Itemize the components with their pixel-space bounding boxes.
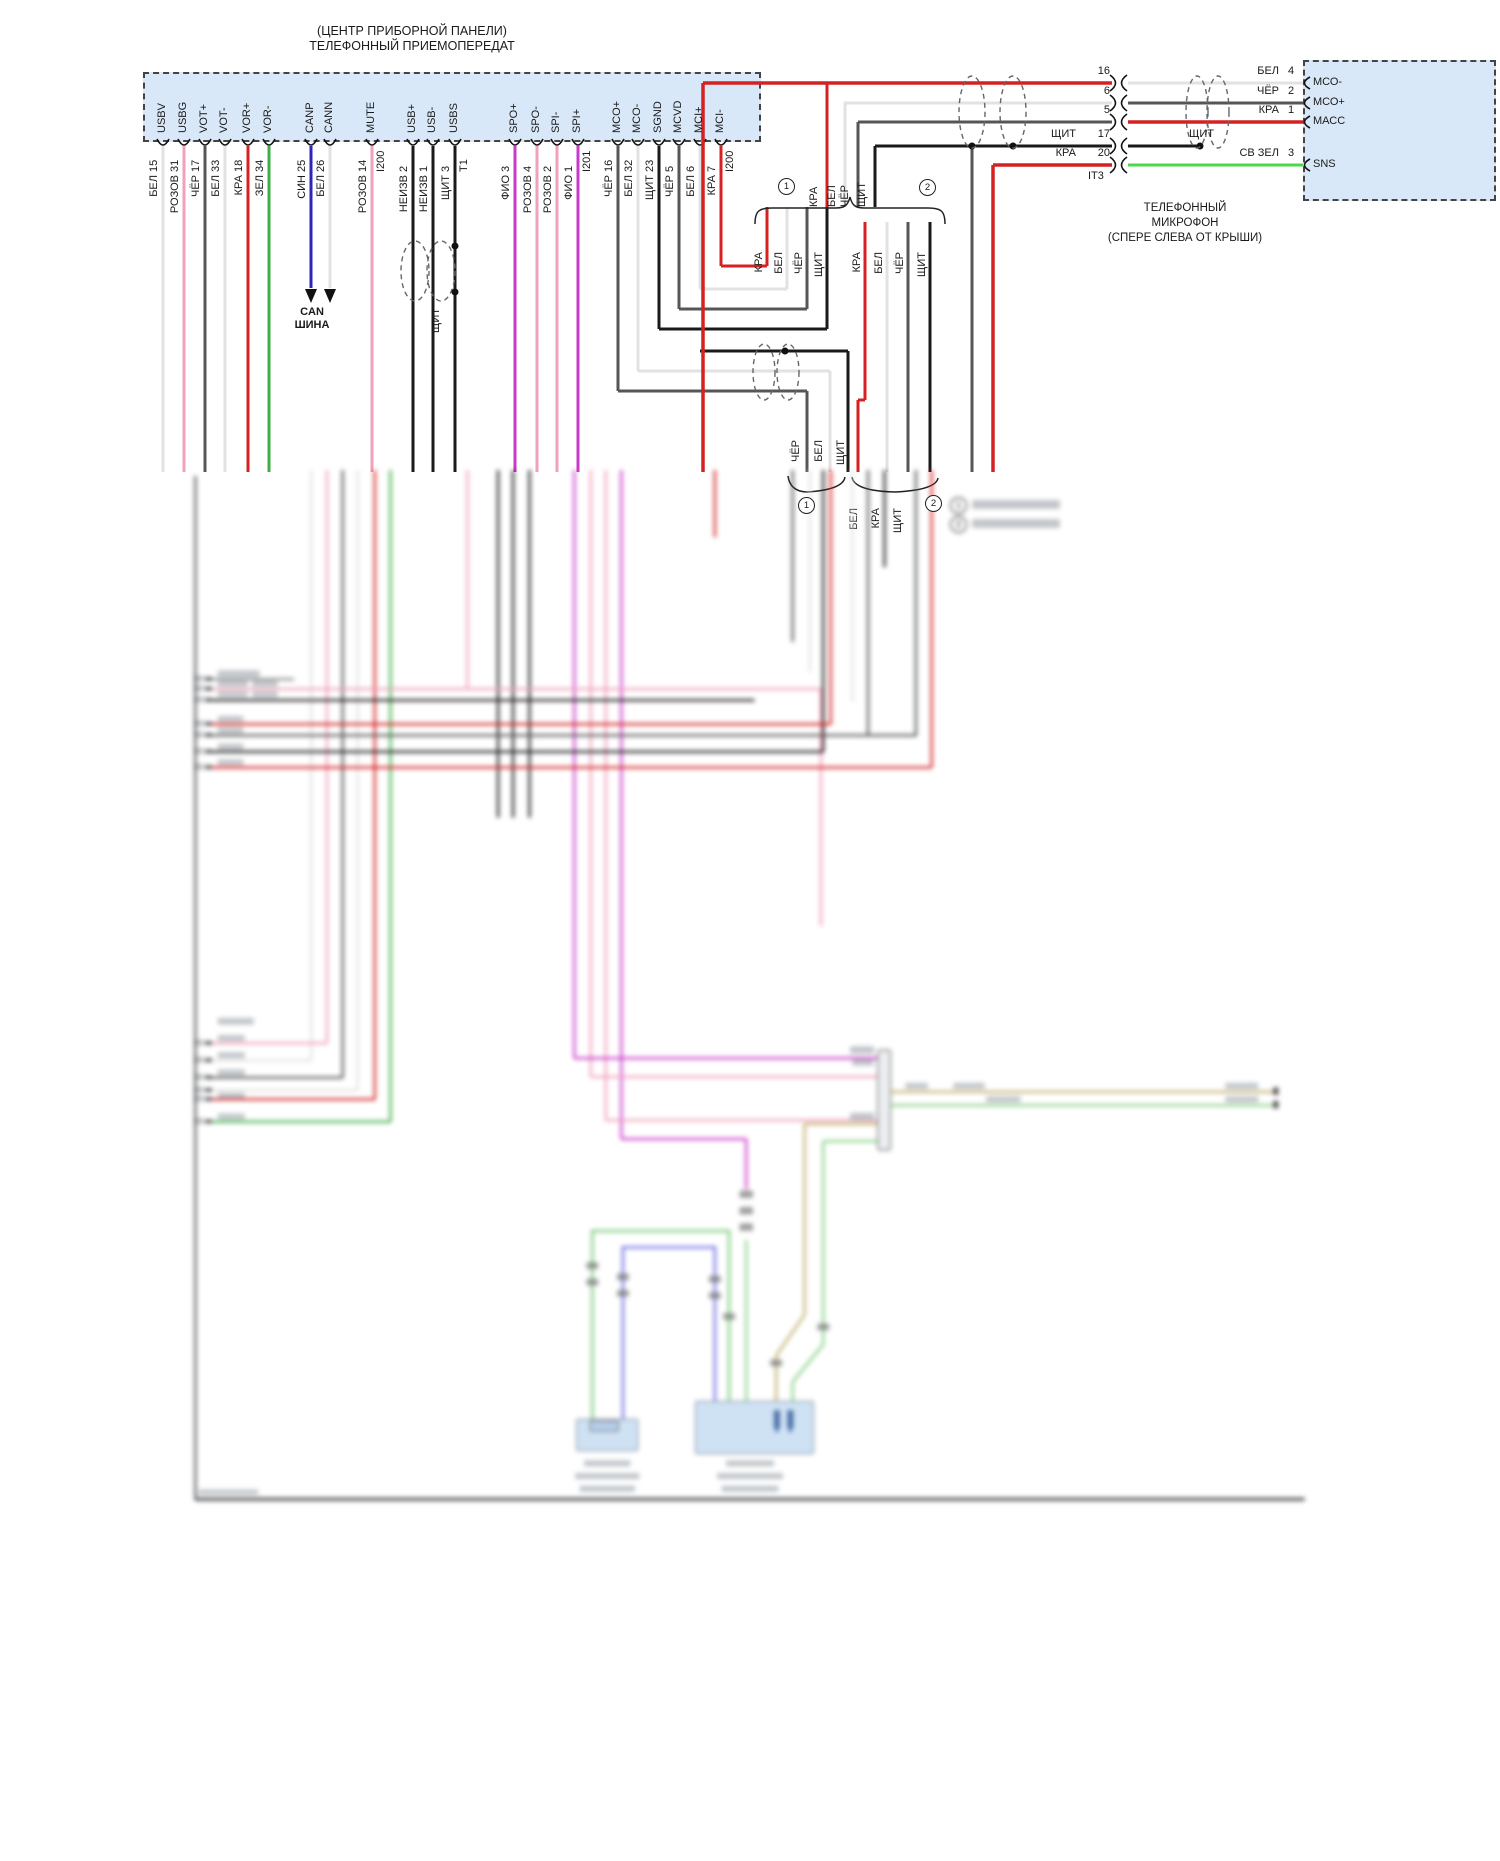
wire-color-label: ЧЁР — [190, 175, 203, 197]
shape — [1305, 97, 1311, 109]
connector-id: I200 — [724, 151, 737, 172]
wire-color-label: РОЗОВ — [357, 175, 370, 213]
pin-number: 2 — [542, 166, 555, 172]
bundle-marker-2: 2 — [919, 179, 936, 196]
pin-number: 25 — [296, 160, 309, 172]
shape — [263, 139, 275, 145]
pin-number: 3 — [500, 166, 513, 172]
shape — [612, 139, 624, 145]
group2-label: ЧЁР — [894, 252, 907, 274]
shape — [1122, 157, 1128, 173]
shape — [219, 139, 231, 145]
trio1-label: БЕЛ — [813, 440, 826, 462]
shape — [715, 139, 727, 145]
mic-wire-label-right: БЕЛ — [1215, 65, 1279, 78]
pin-label-mco-: MCO- — [631, 104, 644, 133]
wire-color-label: НЕИЗВ — [398, 175, 411, 212]
pin-number: 1 — [418, 166, 431, 172]
shield-symbol — [401, 241, 429, 301]
pin-label-mco+: MCO+ — [611, 101, 624, 133]
legend-item-1: 1 — [950, 497, 1100, 513]
pin-label-usbg: USBG — [177, 102, 190, 133]
pin-label-spi+: SPI+ — [571, 109, 584, 133]
pin-label-spo+: SPO+ — [508, 103, 521, 133]
pin-label-spi-: SPI- — [550, 112, 563, 133]
pin-label-mci-: MCI- — [714, 109, 727, 133]
pin-number: 18 — [233, 160, 246, 172]
pin-number: 14 — [357, 160, 370, 172]
shape — [1305, 116, 1311, 128]
pin-number: 7 — [706, 166, 719, 172]
shape — [427, 139, 439, 145]
legend-text-1 — [972, 500, 1060, 509]
pin-label-vor+: VOR+ — [241, 103, 254, 133]
legend-marker-1: 1 — [950, 497, 967, 514]
mic-num-right: 4 — [1288, 65, 1302, 78]
shield-symbol — [959, 76, 985, 148]
wire-color-label: БЕЛ — [148, 175, 161, 197]
bundle-top-label: КРА — [808, 187, 821, 207]
wiring-diagram-page: (ЦЕНТР ПРИБОРНОЙ ПАНЕЛИ) ТЕЛЕФОННЫЙ ПРИЕ… — [0, 0, 1500, 1861]
mic-num-right: 3 — [1288, 147, 1302, 160]
pin-label-vot+: VOT+ — [198, 104, 211, 133]
pin-number: 32 — [623, 160, 636, 172]
group1-label: ЧЁР — [793, 252, 806, 274]
shape — [324, 139, 336, 145]
schematic-blur-layer — [0, 470, 1500, 1861]
mic-wire-label-right: КРА — [1215, 104, 1279, 117]
wire-color-label: НЕИЗВ — [418, 175, 431, 212]
legend-marker-2: 2 — [950, 516, 967, 533]
wire-color-label: РОЗОВ — [542, 175, 555, 213]
group2-label: ЩИТ — [916, 252, 929, 277]
pin-number: 23 — [644, 160, 657, 172]
wire-color-label: РОЗОВ — [169, 175, 182, 213]
shape — [632, 139, 644, 145]
wire-color-label: ФИО — [500, 175, 513, 200]
pin-label-vor-: VOR- — [262, 106, 275, 134]
shield-symbol — [1000, 76, 1026, 148]
pin-number: 31 — [169, 160, 182, 172]
shape — [531, 139, 543, 145]
pin-number: 2 — [398, 166, 411, 172]
shield-symbol — [427, 241, 455, 301]
pin-number: 34 — [254, 160, 267, 172]
bundle-top-label: БЕЛ — [826, 185, 839, 207]
connector-id: I200 — [375, 151, 388, 172]
shape — [1305, 77, 1311, 89]
pin-number: 3 — [440, 166, 453, 172]
mic-pin-мсо-: МСО- — [1313, 76, 1342, 89]
shape — [157, 139, 169, 145]
shape — [1122, 114, 1128, 130]
pin-number: 15 — [148, 160, 161, 172]
pin-label-mute: MUTE — [365, 102, 378, 133]
mic-wire-label-left: ЩИТ — [1036, 128, 1076, 141]
shape — [1122, 138, 1128, 154]
can-arrow-icon — [324, 289, 336, 303]
shape — [305, 139, 317, 145]
pin-label-cann: CANN — [323, 102, 336, 133]
group2-label: БЕЛ — [873, 252, 886, 274]
group2-label: КРА — [851, 252, 864, 272]
mic-wire-label-right: СВ ЗЕЛ — [1215, 147, 1279, 160]
group1-label: БЕЛ — [773, 252, 786, 274]
wire-color-label: СИН — [296, 175, 309, 199]
wire-color-label: ЩИТ — [440, 175, 453, 200]
mic-wire-label-left: КРА — [1036, 147, 1076, 160]
pin-label-spo-: SPO- — [530, 106, 543, 133]
mic-connector-id: IT3 — [1088, 170, 1104, 183]
pin-number: 17 — [190, 160, 203, 172]
shape — [653, 139, 665, 145]
pin-label-sgnd: SGND — [652, 101, 665, 133]
legend-text-2 — [972, 519, 1060, 528]
wire-color-label: РОЗОВ — [522, 175, 535, 213]
pin-label-usb-: USB- — [426, 107, 439, 133]
pin-number: 26 — [315, 160, 328, 172]
pin-label-mcvd: MCVD — [672, 101, 685, 133]
junction-dot — [452, 289, 459, 296]
junction-dot — [782, 348, 789, 355]
pin-number: 16 — [603, 160, 616, 172]
mic-num-left: 20 — [1080, 147, 1110, 160]
mic-num-left: 16 — [1080, 65, 1110, 78]
usb-shield-label: ЩИТ — [430, 308, 443, 333]
junction-dot — [452, 243, 459, 250]
shape — [572, 139, 584, 145]
mic-pin-sns: SNS — [1313, 158, 1336, 171]
wire-color-label: ЧЁР — [603, 175, 616, 197]
pin-number: 1 — [563, 166, 576, 172]
pin-label-mci+: MCI+ — [693, 106, 706, 133]
shape — [1305, 159, 1311, 171]
lower-marker-1: 1 — [798, 497, 815, 514]
pin-label-canp: CANP — [304, 102, 317, 133]
group1-label: ЩИТ — [813, 252, 826, 277]
wire-color-label: КРА — [233, 175, 246, 195]
mic-num-right: 2 — [1288, 85, 1302, 98]
wire-color-label: БЕЛ — [685, 175, 698, 197]
mic-num-right: 1 — [1288, 104, 1302, 117]
can-arrow-icon — [305, 289, 317, 303]
shape — [1122, 95, 1128, 111]
shape — [199, 139, 211, 145]
shape — [509, 139, 521, 145]
pin-number: 33 — [210, 160, 223, 172]
pin-number: 5 — [664, 166, 677, 172]
shape — [178, 139, 190, 145]
mic-num-left: 6 — [1080, 85, 1110, 98]
wire-color-label: ЩИТ — [644, 175, 657, 200]
bundle-top-label: ЧЁР — [839, 185, 852, 207]
shape — [449, 139, 461, 145]
shape — [673, 139, 685, 145]
pin-label-vot-: VOT- — [218, 107, 231, 133]
connector-id: T1 — [458, 159, 471, 172]
shape — [1122, 75, 1128, 91]
connector-id: I201 — [581, 151, 594, 172]
mic-wire-label-right: ЧЁР — [1215, 85, 1279, 98]
mic-num-left: 5 — [1080, 104, 1110, 117]
shape — [366, 139, 378, 145]
mic-pin-мсо+: МСО+ — [1313, 96, 1345, 109]
mic-pin-масс: МАСС — [1313, 115, 1345, 128]
trio1-label: ЧЁР — [790, 440, 803, 462]
lower-marker-2: 2 — [925, 495, 942, 512]
wire-color-label: ЧЁР — [664, 175, 677, 197]
bundle-top-label: ЩИТ — [856, 182, 869, 207]
blurred-lower-section: 1 2 — [0, 470, 1500, 1861]
pin-label-usb+: USB+ — [406, 104, 419, 133]
mic-wire-label-right: ЩИТ — [1150, 128, 1214, 141]
wire-color-label: БЕЛ — [210, 175, 223, 197]
bundle-marker-1: 1 — [778, 178, 795, 195]
shape — [551, 139, 563, 145]
wire-color-label: ЗЕЛ — [254, 175, 267, 196]
shape — [407, 139, 419, 145]
pin-number: 6 — [685, 166, 698, 172]
group1-label: КРА — [753, 252, 766, 272]
mic-num-left: 17 — [1080, 128, 1110, 141]
pin-number: 4 — [522, 166, 535, 172]
wire-color-label: БЕЛ — [315, 175, 328, 197]
wire-color-label: БЕЛ — [623, 175, 636, 197]
wire-color-label: ФИО — [563, 175, 576, 200]
legend-item-2: 2 — [950, 516, 1100, 532]
wire-color-label: КРА — [706, 175, 719, 195]
shape — [242, 139, 254, 145]
pin-label-usbs: USBS — [448, 103, 461, 133]
pin-label-usbv: USBV — [156, 103, 169, 133]
trio1-label: ЩИТ — [835, 440, 848, 465]
